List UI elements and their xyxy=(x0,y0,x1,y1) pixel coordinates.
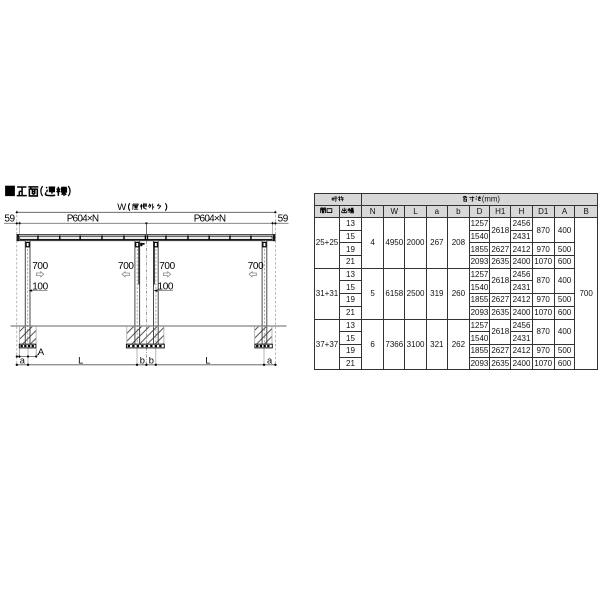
svg-text:b: b xyxy=(149,355,154,365)
svg-text:700: 700 xyxy=(248,261,264,272)
svg-text:a: a xyxy=(20,356,26,366)
svg-text:59: 59 xyxy=(278,214,289,225)
svg-text:W: W xyxy=(117,202,126,213)
svg-text:A: A xyxy=(38,347,45,358)
svg-text:700: 700 xyxy=(159,261,175,272)
svg-text:P604×N: P604×N xyxy=(194,214,226,225)
svg-text:700: 700 xyxy=(118,261,134,272)
svg-text:700: 700 xyxy=(32,261,48,272)
svg-text:P604×N: P604×N xyxy=(67,214,99,225)
svg-text:L: L xyxy=(78,356,83,366)
svg-text:b: b xyxy=(140,355,145,365)
svg-text:L: L xyxy=(205,356,210,366)
svg-text:59: 59 xyxy=(4,214,15,225)
svg-text:a: a xyxy=(267,356,273,366)
